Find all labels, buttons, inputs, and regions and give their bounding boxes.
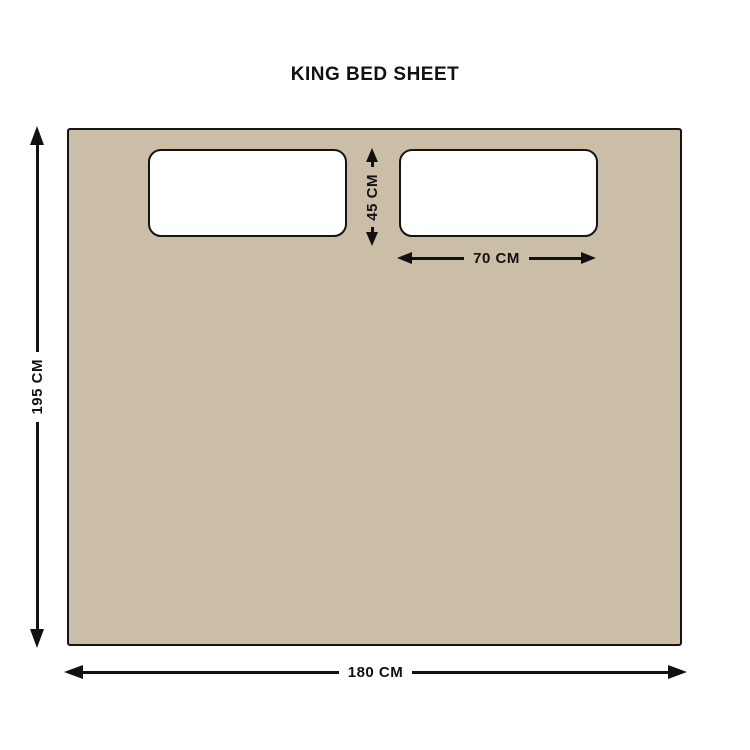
- dimension-pillow-width: 70 CM: [397, 248, 596, 268]
- dimension-line: [83, 671, 339, 674]
- pillow-cutout-left: [148, 149, 347, 237]
- arrowhead-down-icon: [30, 629, 44, 648]
- dimension-label-sheet-width: 180 CM: [348, 665, 404, 680]
- dimension-line: [412, 671, 668, 674]
- pillow-cutout-right: [399, 149, 598, 237]
- arrowhead-left-icon: [397, 252, 412, 264]
- arrowhead-right-icon: [668, 665, 687, 679]
- dimension-sheet-height: 195 CM: [27, 126, 47, 648]
- dimension-label-sheet-height: 195 CM: [30, 359, 45, 415]
- page-title: KING BED SHEET: [0, 64, 750, 86]
- dimension-line: [371, 162, 374, 167]
- arrowhead-down-icon: [366, 232, 378, 246]
- dimension-line: [412, 257, 464, 260]
- dimension-label-pillow-height: 45 CM: [365, 174, 380, 221]
- diagram-canvas: KING BED SHEET 195 CM 180 CM 45 CM 70 CM: [0, 0, 750, 750]
- dimension-line: [36, 145, 39, 352]
- arrowhead-right-icon: [581, 252, 596, 264]
- dimension-line: [529, 257, 581, 260]
- arrowhead-up-icon: [30, 126, 44, 145]
- arrowhead-up-icon: [366, 148, 378, 162]
- dimension-pillow-height: 45 CM: [362, 148, 382, 246]
- dimension-sheet-width: 180 CM: [64, 662, 687, 682]
- dimension-line: [36, 422, 39, 629]
- dimension-label-pillow-width: 70 CM: [473, 251, 520, 266]
- arrowhead-left-icon: [64, 665, 83, 679]
